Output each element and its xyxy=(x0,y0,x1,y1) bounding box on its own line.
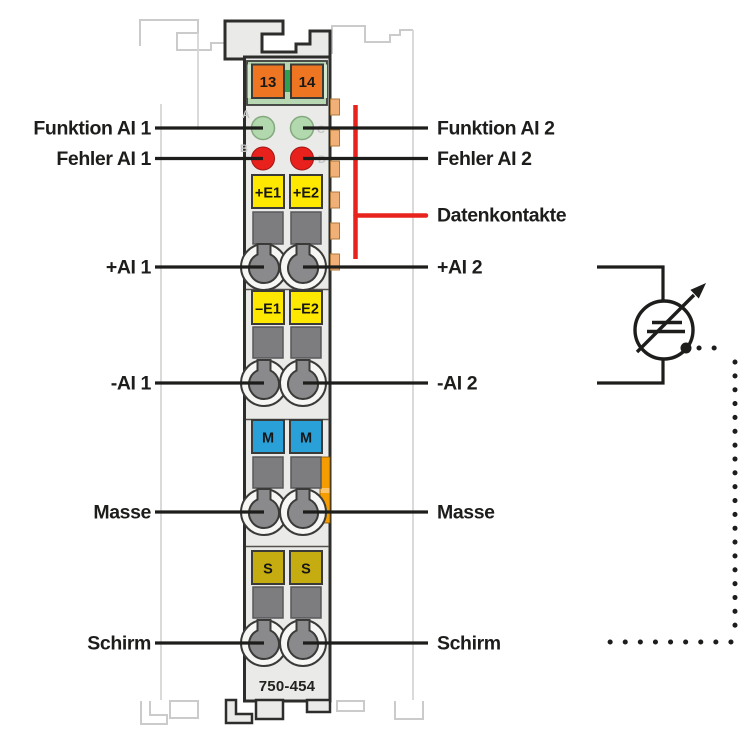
ghost-module-right xyxy=(332,26,423,719)
sensor-wire-bottom xyxy=(597,359,663,383)
io-module: 13 14 A B C D +E1 +E2 xyxy=(225,21,340,723)
clamp-window xyxy=(253,327,283,358)
module-foot-tab xyxy=(256,700,283,719)
clamp-window xyxy=(291,327,321,358)
marker-m1-label: M xyxy=(262,431,274,447)
led-letter-c: C xyxy=(317,124,325,136)
clamp-window xyxy=(253,457,283,488)
labels-left: Funktion AI 1 Fehler AI 1 +AI 1 -AI 1 Ma… xyxy=(33,118,151,655)
label-plus-ai2: +AI 2 xyxy=(437,257,483,279)
sensor-symbol xyxy=(597,267,735,642)
led-letter-a: A xyxy=(242,109,250,121)
label-masse-left: Masse xyxy=(93,502,151,524)
module-top-profile xyxy=(225,21,330,59)
label-funktion-ai1: Funktion AI 1 xyxy=(33,118,151,140)
label-funktion-ai2: Funktion AI 2 xyxy=(437,118,555,140)
module-foot-hook xyxy=(226,700,252,723)
module-model-label: 750-454 xyxy=(259,678,316,695)
label-schirm-left: Schirm xyxy=(87,633,151,655)
power-contact-13-label: 13 xyxy=(260,74,277,91)
shield-dotted-line xyxy=(597,348,735,642)
shield-tap-dot xyxy=(681,343,692,354)
marker-s1-label: S xyxy=(263,562,273,578)
marker-minus-e1-label: –E1 xyxy=(255,302,281,318)
jumper-connector-green xyxy=(285,70,291,92)
clamp-window xyxy=(291,457,321,488)
label-minus-ai2: -AI 2 xyxy=(437,373,478,395)
label-minus-ai1: -AI 1 xyxy=(111,373,152,395)
variable-arrow-icon xyxy=(637,283,706,352)
clamp-window xyxy=(291,587,321,618)
clamp-window xyxy=(253,212,283,244)
marker-s2-label: S xyxy=(301,562,311,578)
label-fehler-ai2: Fehler AI 2 xyxy=(437,148,532,170)
ghost-module-left xyxy=(140,20,226,724)
label-datenkontakte: Datenkontakte xyxy=(437,205,567,227)
marker-minus-e2-label: –E2 xyxy=(293,302,319,318)
labels-right: Funktion AI 2 Fehler AI 2 Datenkontakte … xyxy=(437,118,567,655)
clamp-window xyxy=(253,587,283,618)
label-fehler-ai1: Fehler AI 1 xyxy=(56,148,151,170)
label-plus-ai1: +AI 1 xyxy=(106,257,152,279)
marker-m2-label: M xyxy=(300,431,312,447)
label-schirm-right: Schirm xyxy=(437,633,501,655)
clamp-window xyxy=(291,212,321,244)
data-contacts xyxy=(331,99,340,270)
marker-plus-e2-label: +E2 xyxy=(293,186,319,202)
module-foot-step xyxy=(307,700,330,712)
sensor-wire-top xyxy=(597,267,663,301)
label-masse-right: Masse xyxy=(437,502,495,524)
power-contact-14-label: 14 xyxy=(299,74,316,91)
led-letter-b: B xyxy=(240,143,248,155)
marker-plus-e1-label: +E1 xyxy=(255,186,281,202)
wiring-diagram: 13 14 A B C D +E1 +E2 xyxy=(0,0,750,750)
